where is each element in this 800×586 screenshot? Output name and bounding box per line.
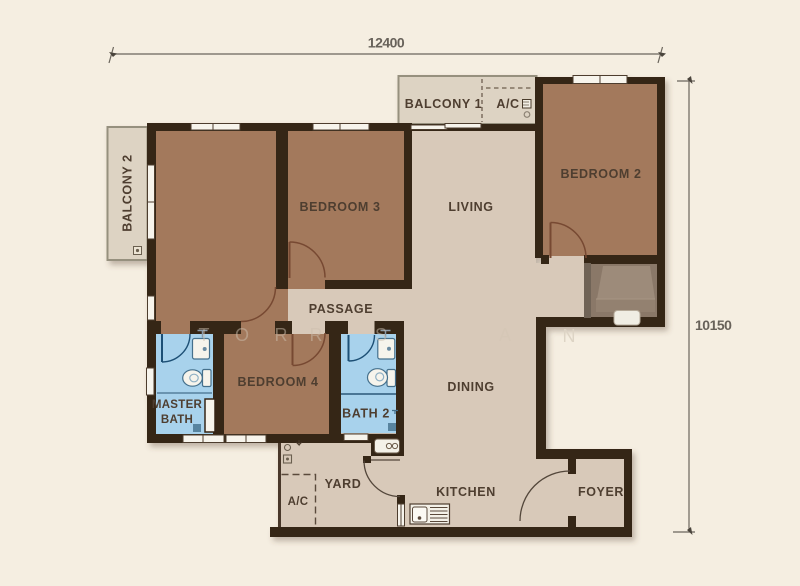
svg-text:FOYER: FOYER (578, 485, 624, 499)
svg-text:LIVING: LIVING (448, 200, 493, 214)
svg-text:A/C: A/C (496, 97, 519, 111)
svg-text:BALCONY 2: BALCONY 2 (121, 154, 135, 231)
svg-text:R: R (275, 325, 288, 345)
svg-text:R: R (310, 325, 323, 345)
svg-text:BEDROOM 2: BEDROOM 2 (560, 167, 641, 181)
svg-text:O: O (235, 325, 249, 345)
svg-text:PASSAGE: PASSAGE (309, 302, 373, 316)
svg-text:MASTER: MASTER (152, 399, 203, 411)
svg-text:KITCHEN: KITCHEN (436, 485, 496, 499)
svg-text:BALCONY 1: BALCONY 1 (405, 97, 482, 111)
svg-text:A/C: A/C (288, 496, 309, 508)
svg-text:12400: 12400 (368, 35, 405, 51)
svg-text:BATH 2: BATH 2 (342, 407, 390, 421)
svg-text:T: T (199, 325, 210, 345)
svg-text:YARD: YARD (325, 477, 362, 491)
svg-text:S: S (375, 325, 387, 345)
svg-text:BEDROOM 4: BEDROOM 4 (237, 375, 318, 389)
svg-text:DINING: DINING (447, 380, 494, 394)
svg-text:BATH: BATH (161, 414, 193, 426)
svg-text:BEDROOM 3: BEDROOM 3 (299, 200, 380, 214)
svg-text:A: A (499, 325, 511, 345)
svg-text:10150: 10150 (695, 317, 732, 333)
svg-text:N: N (563, 326, 576, 346)
